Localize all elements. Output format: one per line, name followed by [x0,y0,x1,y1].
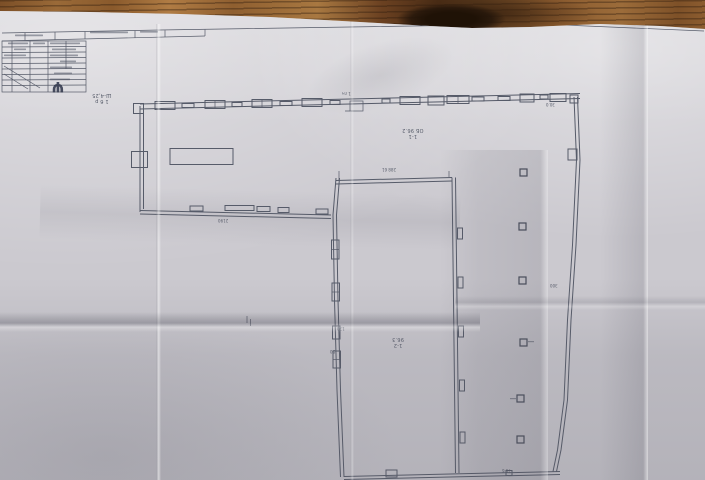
hall-right-wall-pilasters [339,171,512,477]
dim-hall-top: 288 61 [382,167,396,171]
wing-wall-pilasters [190,206,328,215]
dim-bottom-right: 75 б [502,468,511,472]
title-block [2,30,205,92]
floor-plan-walls [134,94,581,480]
dim-left-wall-b: 50 [330,349,335,353]
floor-plan-drawing [0,0,705,480]
column-row [510,169,534,443]
photo-of-floor-plan: 1 б р Ш-4,25 1-1 ОБ 96.2 1-2 96.3 1 пч 2… [0,0,705,480]
dim-right-mid: 300 [550,283,558,287]
top-wall-note: 1 пч [342,91,351,95]
paper-sheet: 1 б р Ш-4,25 1-1 ОБ 96.2 1-2 96.3 1 пч 2… [0,0,705,480]
dim-right-top: 30.0 [546,102,555,106]
title-block-text-marks [4,31,158,80]
equipment-rectangle [132,149,234,168]
fold-center-ticks [247,316,251,326]
title-block-logo-icon: Ψ [52,78,64,94]
dim-left-wall-a: 130 [337,326,345,330]
dim-wing-bottom: 2190 [218,218,228,222]
